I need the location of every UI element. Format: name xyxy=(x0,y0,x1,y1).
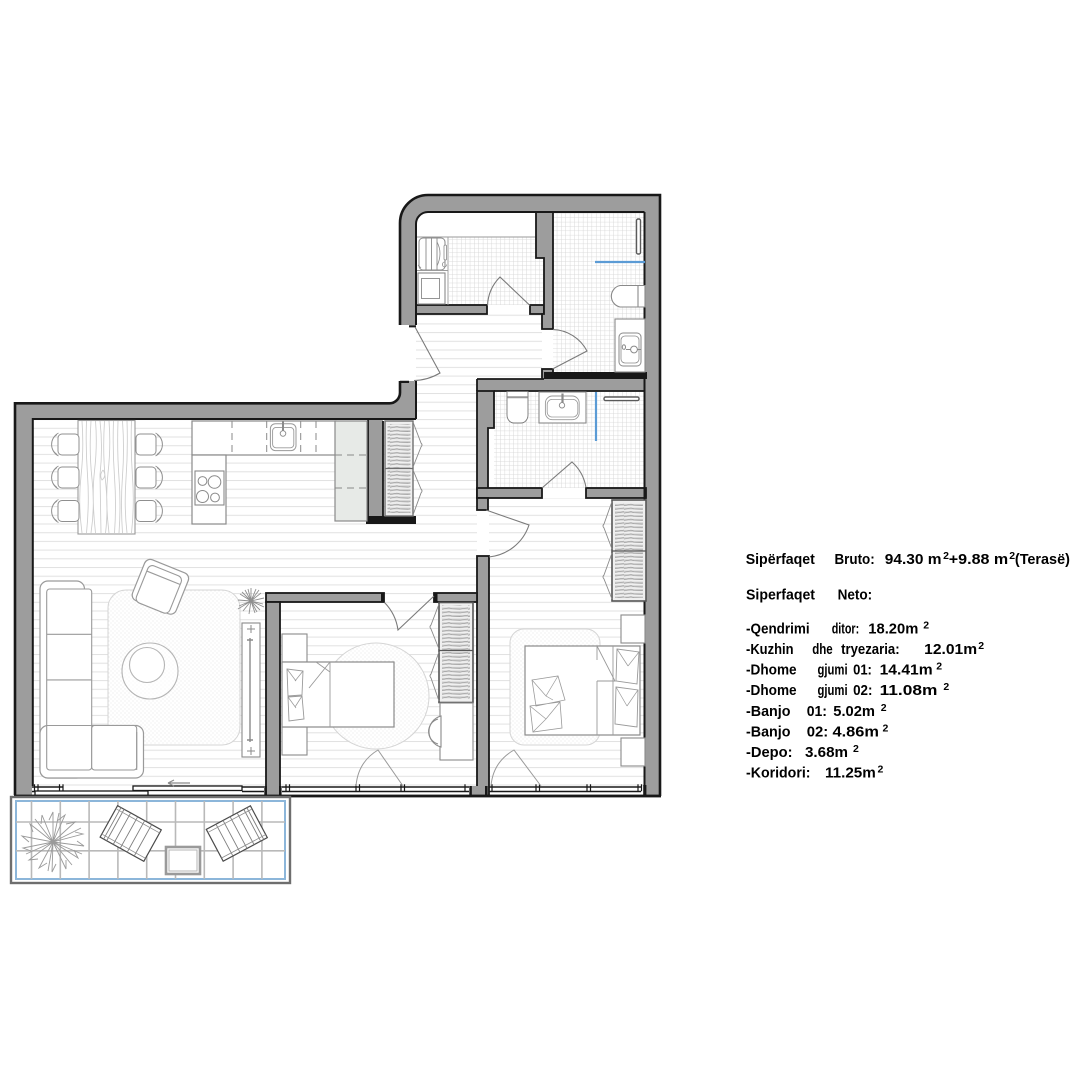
svg-text:-Qendrimiditor:18.20m2: -Qendrimiditor:18.20m2 xyxy=(746,620,929,638)
svg-text:-Dhomegjumi01:14.41m2: -Dhomegjumi01:14.41m2 xyxy=(746,661,942,679)
svg-text:SipërfaqetBruto:94.30 m2+9.88: SipërfaqetBruto:94.30 m2+9.88 m2(Terasë) xyxy=(746,550,1070,568)
svg-text:-Banjo02:4.86m2: -Banjo02:4.86m2 xyxy=(746,723,889,741)
svg-text:SiperfaqetNeto:: SiperfaqetNeto: xyxy=(746,587,872,604)
svg-text:-Banjo01:5.02m2: -Banjo01:5.02m2 xyxy=(746,702,887,720)
svg-text:-Kuzhindhetryezaria:12.01m2: -Kuzhindhetryezaria:12.01m2 xyxy=(746,640,984,658)
